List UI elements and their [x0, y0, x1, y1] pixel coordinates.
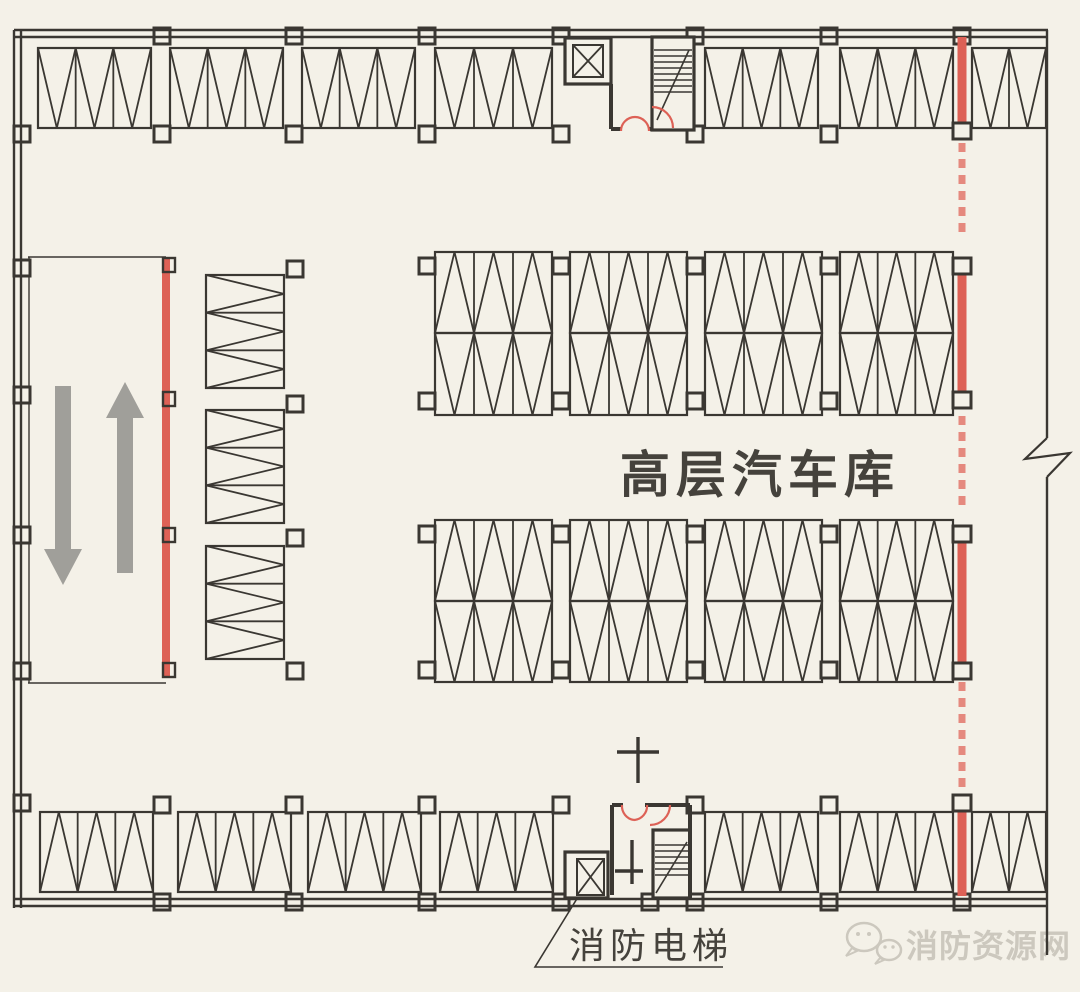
column [687, 393, 703, 409]
column [154, 126, 170, 142]
column [419, 258, 435, 274]
column [553, 258, 569, 274]
column [553, 393, 569, 409]
column [419, 797, 435, 813]
column [286, 797, 302, 813]
column [419, 526, 435, 542]
wechat-eye [883, 945, 886, 948]
column [419, 662, 435, 678]
column [287, 530, 303, 546]
column [553, 126, 569, 142]
column [154, 894, 170, 910]
column [286, 894, 302, 910]
column [553, 662, 569, 678]
column [287, 261, 303, 277]
column [286, 126, 302, 142]
wechat-eye [867, 932, 871, 936]
column [287, 396, 303, 412]
column [687, 526, 703, 542]
column [687, 258, 703, 274]
floor-plan-page: 消防资源网 高层汽车库 消防电梯 [0, 0, 1080, 992]
column [287, 663, 303, 679]
column [821, 662, 837, 678]
column [419, 393, 435, 409]
floor-plan-svg: 消防资源网 高层汽车库 消防电梯 [0, 0, 1080, 992]
column [821, 126, 837, 142]
column [821, 258, 837, 274]
fire-elevator-label: 消防电梯 [569, 926, 733, 966]
column [687, 662, 703, 678]
column [419, 126, 435, 142]
column [154, 797, 170, 813]
column [954, 894, 970, 910]
wechat-eye [891, 945, 894, 948]
column [821, 393, 837, 409]
garage-area-label: 高层汽车库 [620, 447, 900, 503]
column [553, 797, 569, 813]
column [821, 797, 837, 813]
wechat-eye [856, 932, 860, 936]
column [553, 526, 569, 542]
column [821, 526, 837, 542]
column [821, 894, 837, 910]
column [419, 894, 435, 910]
